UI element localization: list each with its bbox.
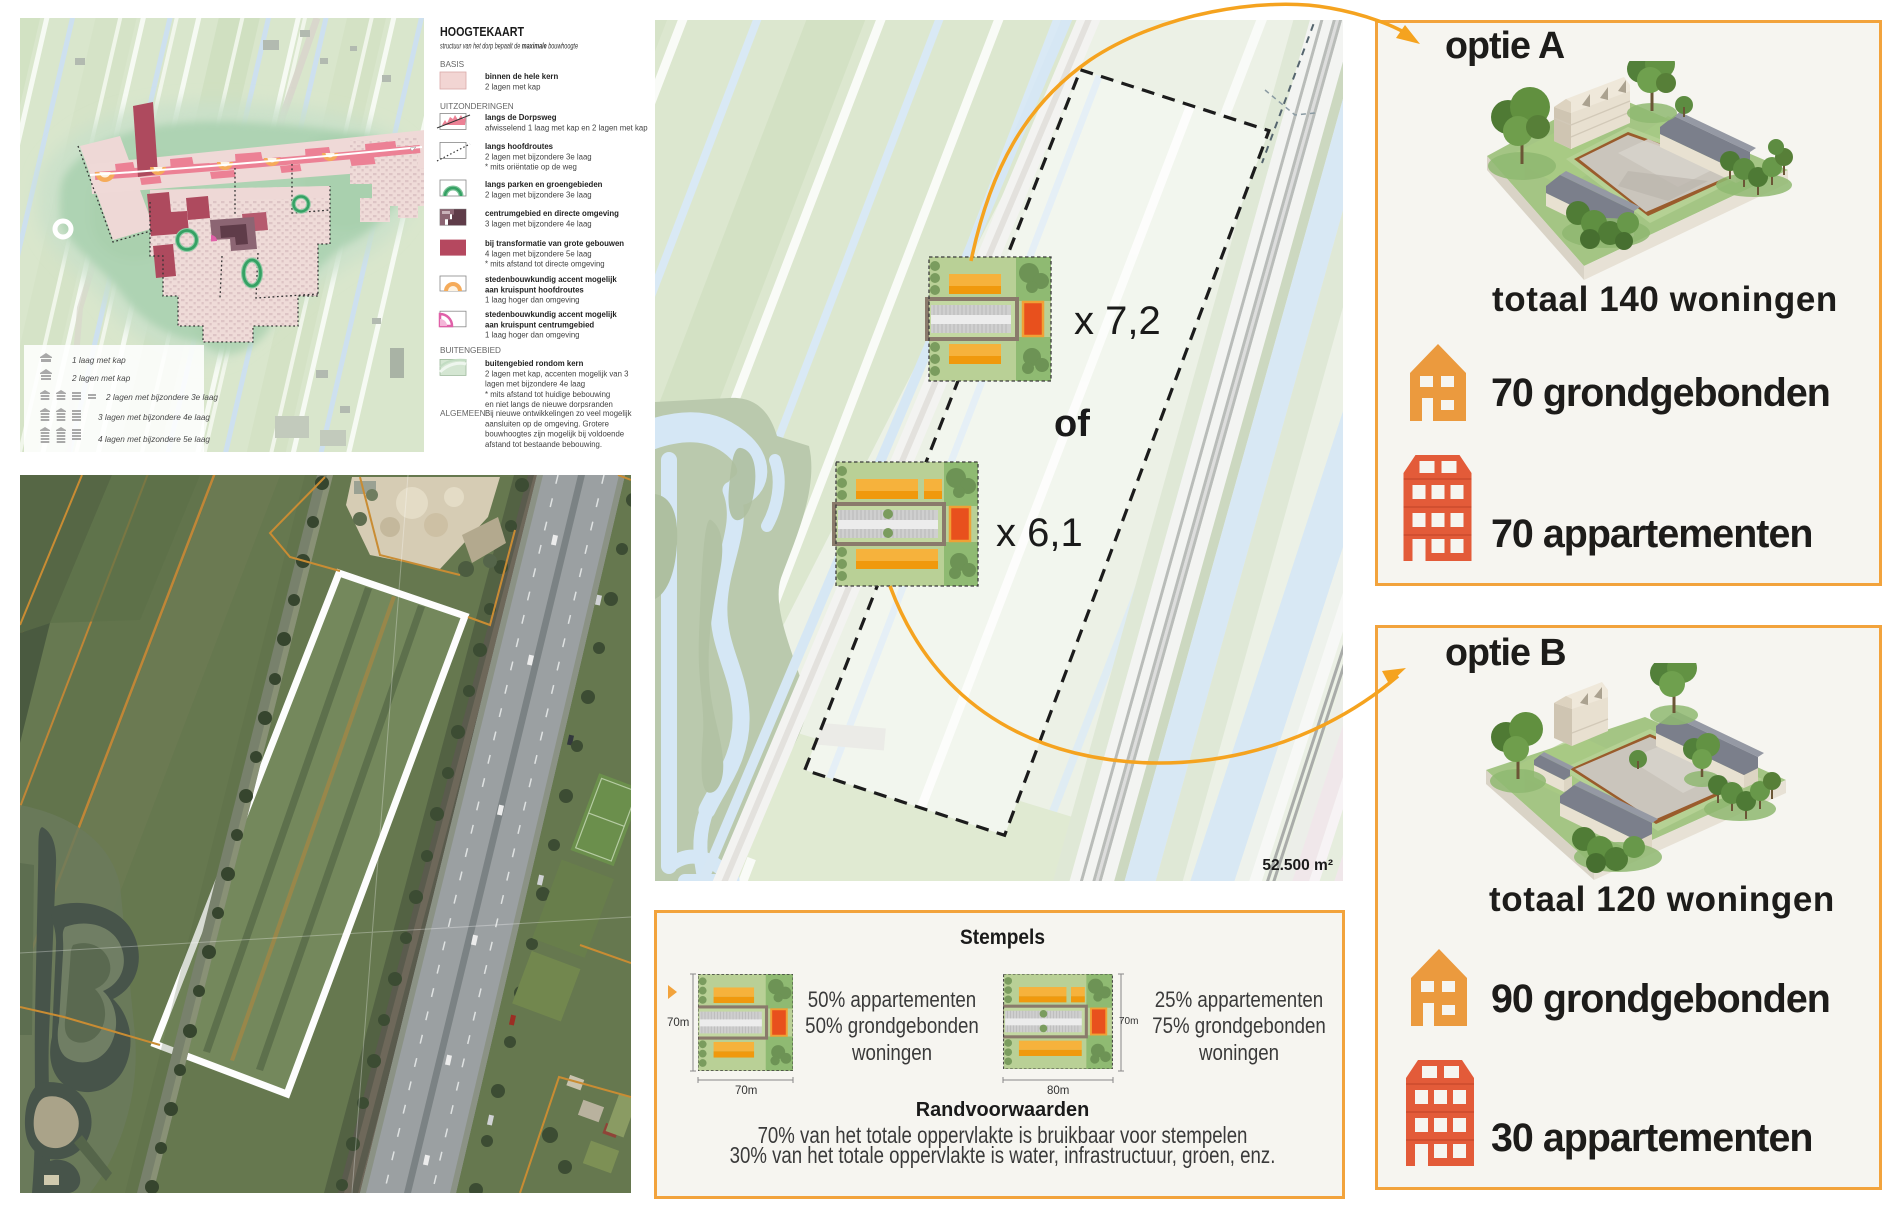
svg-text:of: of: [1054, 403, 1090, 445]
svg-text:2 lagen met kap: 2 lagen met kap: [485, 82, 541, 91]
svg-text:stedenbouwkundig accent mogeli: stedenbouwkundig accent mogelijk: [485, 310, 617, 319]
svg-text:Bij nieuwe ontwikkelingen zo v: Bij nieuwe ontwikkelingen zo veel mogeli…: [485, 409, 632, 418]
svg-text:80m: 80m: [1047, 1085, 1069, 1097]
svg-text:bouwhoogtes zijn mogelijk bij: bouwhoogtes zijn mogelijk bij voldoende: [485, 430, 624, 439]
svg-text:lagen met bijzondere 4e laag: lagen met bijzondere 4e laag: [485, 380, 585, 389]
svg-text:2 lagen met kap: 2 lagen met kap: [71, 374, 131, 383]
svg-text:afwisselend 1 laag met kap en: afwisselend 1 laag met kap en 2 lagen me…: [485, 123, 648, 132]
svg-text:centrumgebied en directe omgev: centrumgebied en directe omgeving: [485, 209, 619, 218]
svg-text:3 lagen met bijzondere 4e laag: 3 lagen met bijzondere 4e laag: [98, 413, 210, 422]
svg-text:2 lagen met bijzondere 3e laag: 2 lagen met bijzondere 3e laag: [485, 190, 592, 199]
svg-text:bij transformatie van grote ge: bij transformatie van grote gebouwen: [485, 239, 624, 248]
svg-text:structuur van het dorp bepaalt: structuur van het dorp bepaalt de maxima…: [440, 42, 578, 51]
svg-text:2 lagen met bijzondere 3e laag: 2 lagen met bijzondere 3e laag: [105, 393, 218, 402]
svg-text:langs de Dorpsweg: langs de Dorpsweg: [485, 113, 557, 122]
svg-text:HOOGTEKAART: HOOGTEKAART: [440, 24, 524, 39]
svg-text:2 lagen met kap, accenten moge: 2 lagen met kap, accenten mogelijk van 3: [485, 369, 628, 378]
svg-text:aan kruispunt hoofdroutes: aan kruispunt hoofdroutes: [485, 285, 584, 294]
svg-text:UITZONDERINGEN: UITZONDERINGEN: [440, 102, 514, 111]
svg-text:70m: 70m: [1119, 1016, 1138, 1027]
svg-text:BUITENGEBIED: BUITENGEBIED: [440, 346, 501, 355]
svg-text:aansluiten op de omgeving. Gro: aansluiten op de omgeving. Grotere: [485, 419, 609, 428]
svg-text:4 lagen met bijzondere 5e laag: 4 lagen met bijzondere 5e laag: [485, 249, 592, 258]
svg-text:1 laag hoger dan omgeving: 1 laag hoger dan omgeving: [485, 296, 580, 305]
svg-text:ALGEMEEN: ALGEMEEN: [440, 409, 486, 418]
svg-text:en niet langs de nieuwe dorpsr: en niet langs de nieuwe dorpsranden: [485, 400, 613, 409]
svg-text:* mits oriëntatie op de weg: * mits oriëntatie op de weg: [485, 163, 577, 172]
svg-text:afstand tot bestaande bebouwin: afstand tot bestaande bebouwing.: [485, 440, 602, 449]
svg-text:binnen de hele kern: binnen de hele kern: [485, 72, 558, 81]
svg-text:stedenbouwkundig accent mogeli: stedenbouwkundig accent mogelijk: [485, 275, 617, 284]
svg-text:4 lagen met bijzondere 5e laag: 4 lagen met bijzondere 5e laag: [98, 435, 210, 444]
svg-text:1 laag hoger dan omgeving: 1 laag hoger dan omgeving: [485, 331, 580, 340]
svg-text:BASIS: BASIS: [440, 60, 465, 69]
svg-text:* mits afstand tot directe om: * mits afstand tot directe omgeving: [485, 260, 605, 269]
svg-text:langs hoofdroutes: langs hoofdroutes: [485, 142, 554, 151]
svg-text:70m: 70m: [735, 1085, 757, 1097]
svg-text:2 lagen met bijzondere 3e laag: 2 lagen met bijzondere 3e laag: [485, 152, 592, 161]
svg-text:1 laag met kap: 1 laag met kap: [72, 356, 126, 365]
svg-text:70m: 70m: [667, 1017, 689, 1029]
svg-text:3 lagen met bijzondere 4e laag: 3 lagen met bijzondere 4e laag: [485, 219, 592, 228]
svg-text:langs parken en groengebieden: langs parken en groengebieden: [485, 180, 603, 189]
svg-text:buitengebied rondom kern: buitengebied rondom kern: [485, 359, 584, 368]
svg-text:52.500 m²: 52.500 m²: [1262, 857, 1333, 874]
svg-text:* mits afstand tot huidige be: * mits afstand tot huidige bebouwing: [485, 390, 610, 399]
svg-text:aan kruispunt centrumgebied: aan kruispunt centrumgebied: [485, 320, 594, 329]
svg-text:x 7,2: x 7,2: [1074, 299, 1161, 343]
svg-text:x 6,1: x 6,1: [996, 511, 1083, 555]
